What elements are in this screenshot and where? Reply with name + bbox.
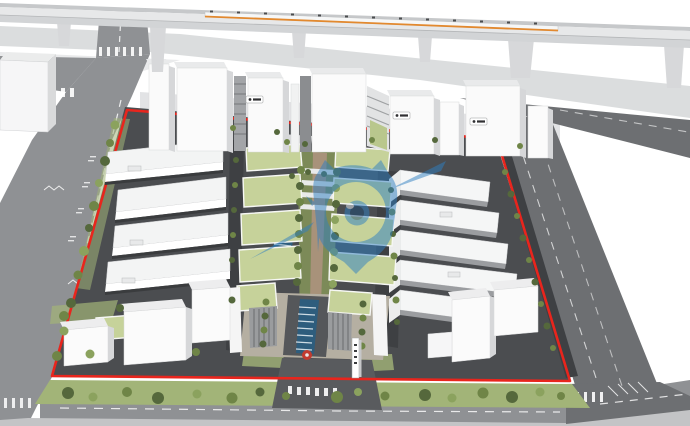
masterplan-render: Industrial park masterplan: red site-bou… [0,0,690,426]
logo-plaque [246,96,263,103]
tower [440,102,464,156]
building-box [188,279,230,343]
tower [528,106,553,159]
masterplan-svg: Industrial park masterplan: red site-bou… [0,0,690,426]
curtain-wall-east [328,312,352,351]
building-box [60,318,114,366]
building-low-slab [428,332,452,358]
tower-atrium-gap [300,76,311,152]
tower [146,59,175,152]
tower [245,72,289,153]
building-box [448,288,496,362]
entrance-drive [272,358,382,410]
tower [309,68,366,152]
logo-plaque [470,118,487,125]
offsite-building-northwest [0,52,56,132]
building-box [120,299,192,365]
tower [387,90,440,156]
tower [174,62,233,153]
entrance-totem-sign [352,338,362,378]
building-box [490,278,538,336]
tower-louvered-core [234,76,246,151]
logo-plaque [393,112,410,119]
